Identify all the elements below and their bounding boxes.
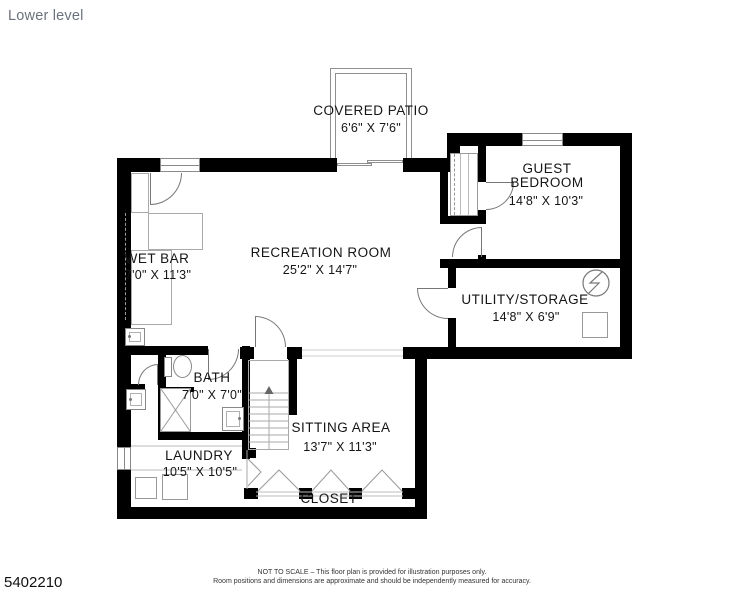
window-icon: [117, 447, 131, 470]
room-label-laundry: LAUNDRY: [165, 448, 233, 463]
wall: [440, 172, 448, 216]
sliding-patio-door-icon: [367, 160, 403, 163]
room-label-guest-bedroom-1: GUEST: [522, 161, 571, 176]
corner-closet-icon: [131, 173, 149, 213]
room-dims-wet-bar: 7'0" X 11'3": [125, 268, 191, 282]
wall: [402, 488, 415, 499]
door-swing-icon: [150, 173, 182, 205]
disclaimer-line-1: NOT TO SCALE – This floor plan is provid…: [258, 569, 487, 576]
room-label-wet-bar: WET BAR: [125, 251, 190, 266]
page-title: Lower level: [8, 8, 84, 24]
wall: [117, 507, 427, 519]
wall: [448, 318, 456, 347]
closet-rod-icon: [454, 154, 455, 215]
door-swing-icon: [452, 227, 482, 257]
bath-sink-icon: [222, 407, 244, 431]
wall: [478, 146, 486, 182]
water-heater-icon: [582, 312, 608, 338]
wall: [242, 346, 250, 459]
toilet-icon: [164, 357, 172, 377]
wall: [242, 448, 256, 458]
room-dims-bath: 7'0" X 7'0": [182, 388, 242, 402]
wall: [440, 259, 632, 268]
stairs-up-arrow-icon: [265, 386, 274, 394]
cased-opening-lines: [302, 350, 403, 356]
room-label-recreation-room: RECREATION ROOM: [251, 245, 392, 260]
room-label-bath: BATH: [193, 370, 230, 385]
room-dims-utility-storage: 14'8" X 6'9": [492, 310, 559, 324]
room-label-utility-storage: UTILITY/STORAGE: [461, 292, 588, 307]
closet-track-lines: [247, 450, 403, 496]
door-swing-icon: [138, 364, 158, 385]
wall: [244, 488, 258, 499]
room-dims-laundry: 10'5" X 10'5": [163, 465, 238, 479]
wall: [620, 133, 632, 359]
wall: [478, 210, 486, 220]
wall: [288, 352, 297, 415]
wall: [448, 268, 456, 288]
wall: [131, 346, 208, 355]
washer-icon: [135, 477, 157, 499]
room-label-sitting-area: SITTING AREA: [291, 420, 390, 435]
room-dims-guest-bedroom: 14'8" X 10'3": [509, 194, 584, 208]
sliding-patio-door-icon: [337, 163, 372, 166]
window-icon: [522, 133, 563, 146]
room-label-guest-bedroom-2: BEDROOM: [510, 175, 583, 190]
hall-sink-icon: [126, 389, 146, 410]
wet-bar-sink-icon: [125, 328, 145, 346]
room-dims-sitting-area: 13'7" X 11'3": [303, 440, 377, 454]
window-icon: [160, 158, 200, 172]
wall: [460, 133, 522, 146]
wall: [403, 347, 632, 359]
bedroom-closet-icon: [450, 153, 478, 216]
wall: [403, 158, 447, 172]
door-swing-icon: [417, 288, 448, 319]
room-label-closet: CLOSET: [300, 491, 357, 506]
floor-plan-page: Lower level: [0, 0, 741, 600]
room-dims-covered-patio: 6'6" X 7'6": [341, 121, 401, 135]
stairs-icon: [248, 361, 289, 450]
wall: [158, 432, 250, 440]
listing-id: 5402210: [4, 574, 62, 591]
toilet-icon: [173, 355, 192, 378]
room-dims-recreation-room: 25'2" X 14'7": [283, 263, 358, 277]
disclaimer-line-2: Room positions and dimensions are approx…: [213, 578, 531, 585]
room-label-covered-patio: COVERED PATIO: [313, 103, 429, 118]
door-swing-icon: [255, 316, 286, 347]
bifold-door-icon: [248, 459, 402, 491]
wall: [200, 158, 337, 172]
wet-bar-counter-icon: [148, 213, 203, 250]
wet-bar-overhead-dashed-line: [125, 213, 126, 320]
wall: [415, 359, 427, 519]
